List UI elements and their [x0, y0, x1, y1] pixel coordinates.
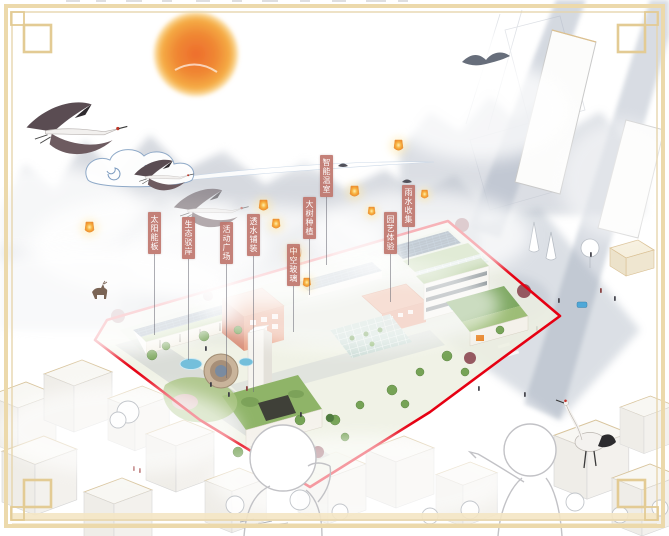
callout-leader-line [390, 254, 391, 302]
callout-leader-line [154, 254, 155, 335]
top-smudge [398, 0, 408, 2]
callout-leader-line [408, 227, 409, 265]
callout-leader-line [293, 286, 294, 332]
callout-label: 活动广场 [220, 222, 233, 264]
top-smudge [162, 0, 172, 2]
callout-activity-plaza: 活动广场 [220, 222, 233, 264]
callout-tree-planting: 大树种植 [303, 197, 316, 239]
callout-leader-line [309, 239, 310, 295]
callout-leader-line [326, 197, 327, 265]
beige-cube [610, 240, 654, 276]
callout-label: 太阳能板 [148, 212, 161, 254]
car [577, 302, 587, 308]
top-smudge [366, 0, 386, 2]
callout-leader-line [188, 259, 189, 360]
scene-illustration [0, 0, 669, 536]
circular-plaza [204, 354, 238, 388]
callout-label: 雨水收集 [402, 185, 415, 227]
top-smudge [232, 0, 242, 2]
top-smudge [262, 0, 278, 2]
presentation-board: 太阳能板 生态驳岸 活动广场 透水铺装 中空玻璃 大树种植 智能温室 园艺体验 … [0, 0, 669, 536]
callout-insulated-glass: 中空玻璃 [287, 244, 300, 286]
callout-solar-panels: 太阳能板 [148, 212, 161, 254]
sun-icon [154, 12, 238, 96]
callout-gardening-experience: 园艺体验 [384, 212, 397, 254]
callout-eco-revetment: 生态驳岸 [182, 217, 195, 259]
pond [180, 359, 202, 370]
callout-rainwater-collection: 雨水收集 [402, 185, 415, 227]
callout-label: 园艺体验 [384, 212, 397, 254]
callout-smart-greenhouse: 智能温室 [320, 155, 333, 197]
callout-leader-line [226, 264, 227, 378]
callout-label: 透水铺装 [247, 214, 260, 256]
pond-small [239, 358, 253, 366]
callout-label: 中空玻璃 [287, 244, 300, 286]
top-smudge [196, 0, 210, 2]
top-smudge [66, 0, 80, 2]
top-smudge [126, 0, 142, 2]
top-smudge [96, 0, 106, 2]
callout-label: 生态驳岸 [182, 217, 195, 259]
callout-permeable-paving: 透水铺装 [247, 214, 260, 256]
callout-label: 智能温室 [320, 155, 333, 197]
callout-leader-line [253, 256, 254, 392]
orange-signboard [476, 335, 484, 341]
top-smudge [332, 0, 346, 2]
top-smudge [300, 0, 310, 2]
callout-label: 大树种植 [303, 197, 316, 239]
